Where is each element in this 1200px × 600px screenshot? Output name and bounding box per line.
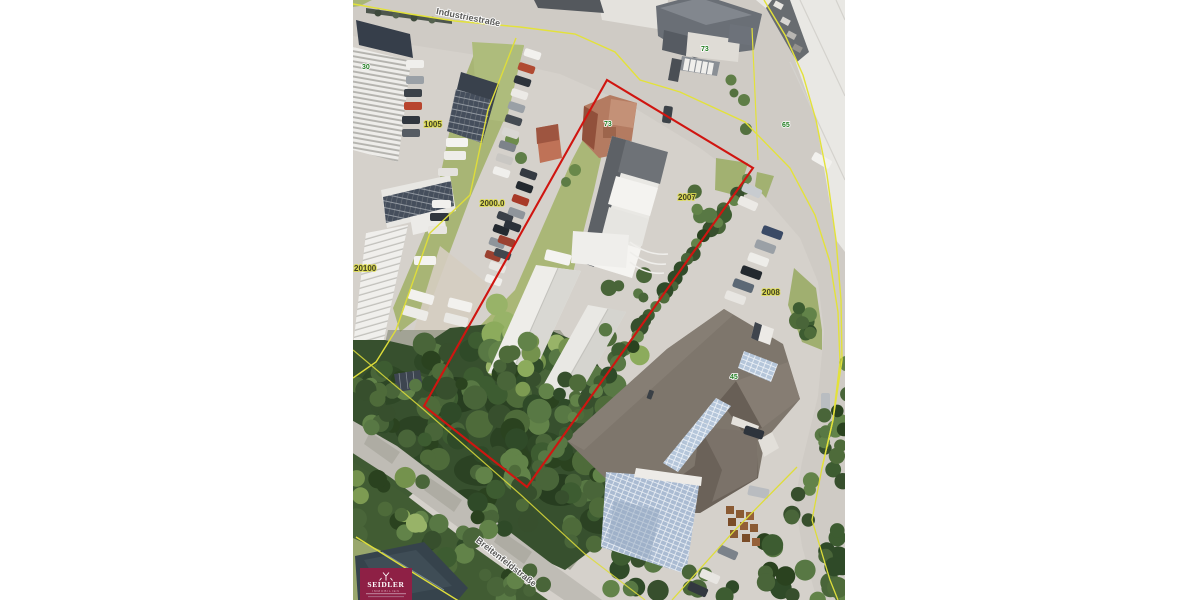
svg-text:2008: 2008 (762, 288, 780, 297)
svg-text:2007: 2007 (678, 193, 696, 202)
svg-text:73: 73 (701, 46, 709, 53)
svg-text:45: 45 (730, 374, 738, 381)
svg-text:1005: 1005 (424, 120, 442, 129)
svg-text:65: 65 (782, 122, 790, 129)
svg-text:2000.0: 2000.0 (480, 199, 505, 208)
svg-text:SEIDLER: SEIDLER (367, 580, 404, 589)
svg-text:73: 73 (604, 121, 612, 128)
svg-text:IMMOBILIEN: IMMOBILIEN (372, 589, 400, 593)
svg-text:20100: 20100 (354, 264, 377, 273)
svg-text:30: 30 (362, 64, 370, 71)
